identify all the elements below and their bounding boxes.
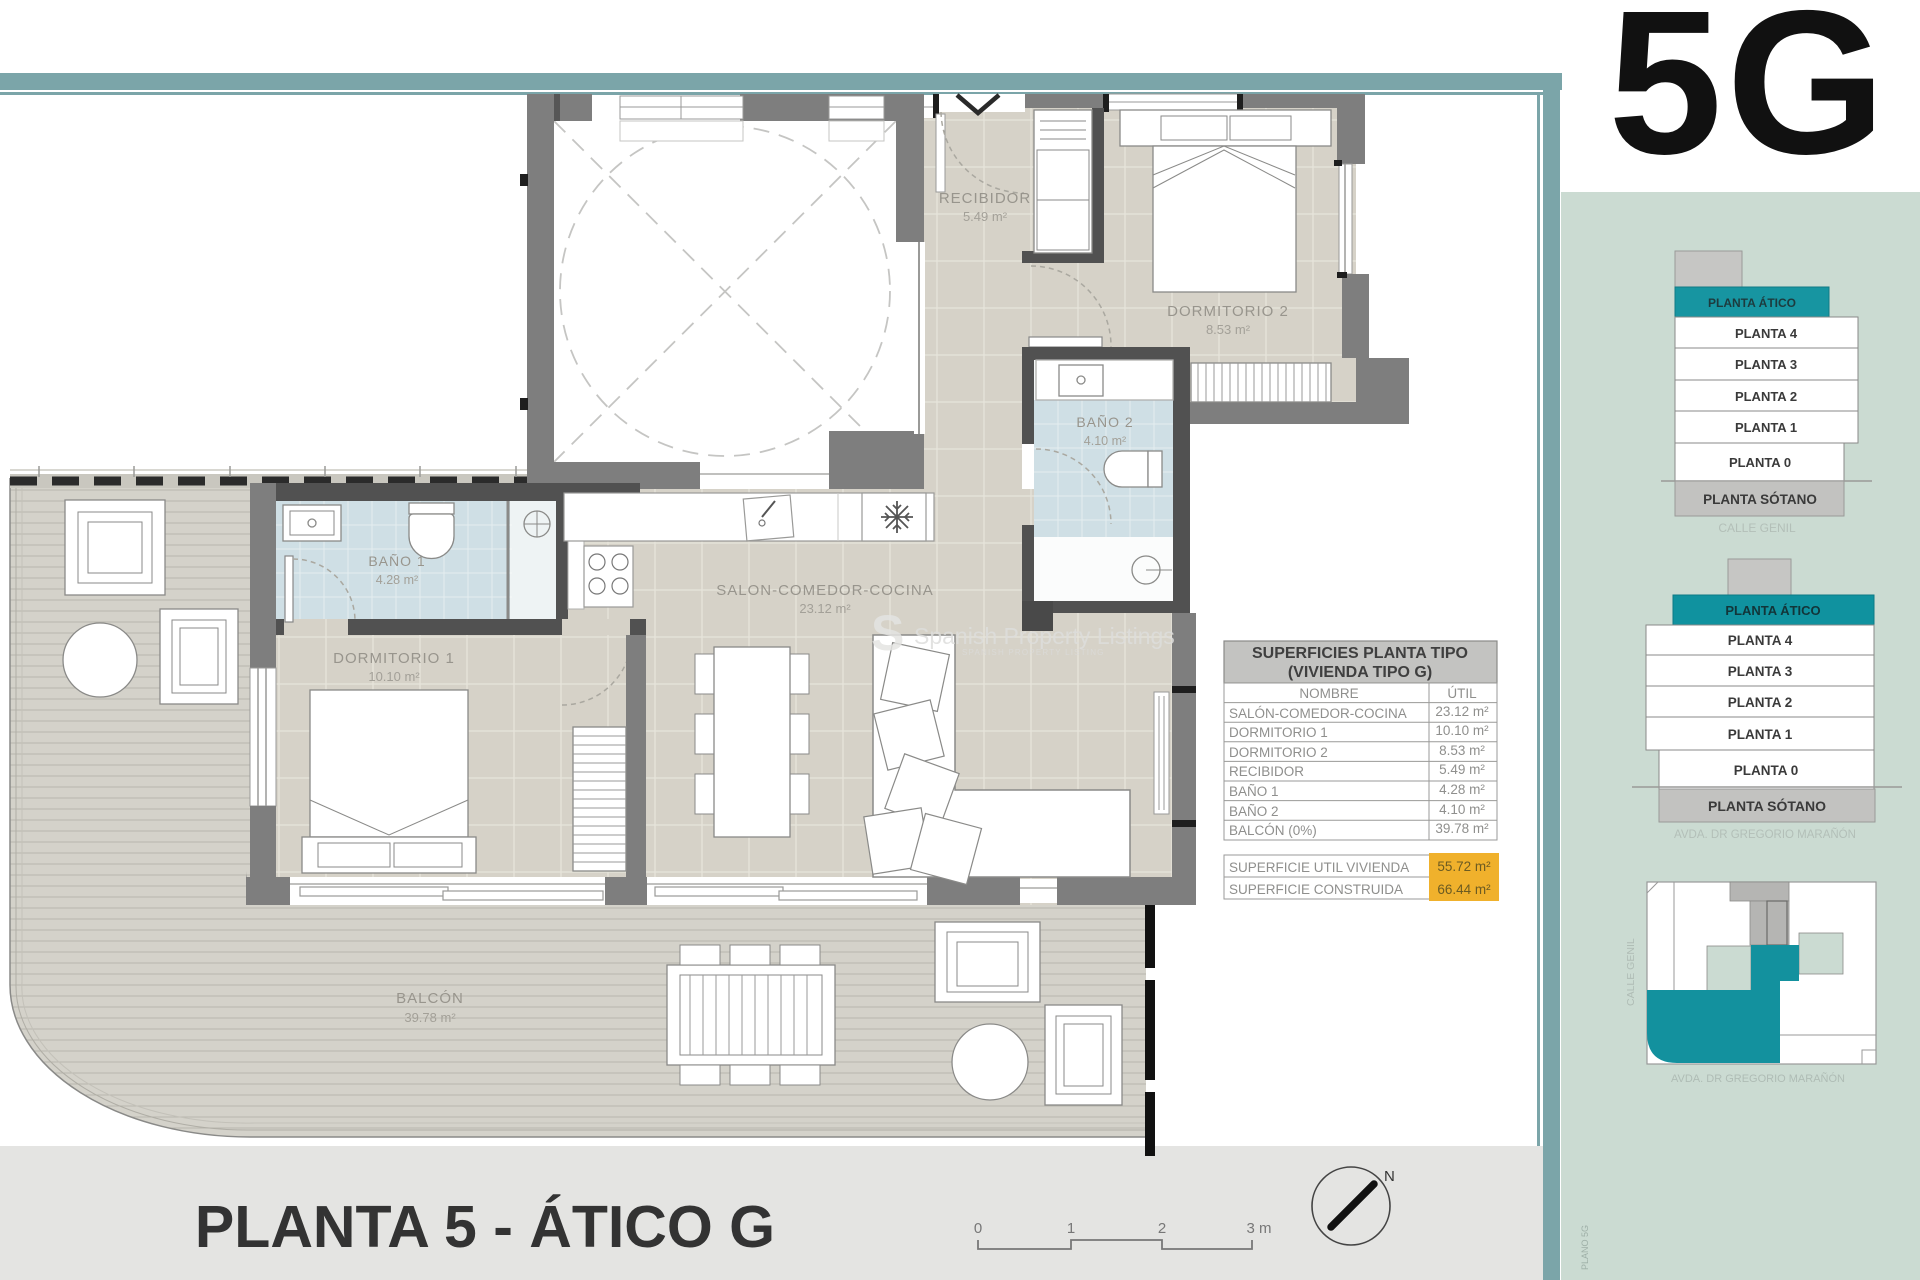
svg-text:(VIVIENDA TIPO G): (VIVIENDA TIPO G) — [1288, 664, 1432, 681]
svg-text:PLANTA 5 - ÁTICO G: PLANTA 5 - ÁTICO G — [195, 1194, 775, 1260]
svg-text:PLANTA 2: PLANTA 2 — [1728, 695, 1793, 710]
svg-text:SALON-COMEDOR-COCINA: SALON-COMEDOR-COCINA — [716, 582, 934, 599]
svg-text:39.78 m²: 39.78 m² — [1435, 821, 1489, 836]
svg-text:N: N — [1384, 1168, 1395, 1185]
svg-text:PLANTA 4: PLANTA 4 — [1728, 633, 1793, 648]
svg-text:PLANTA 0: PLANTA 0 — [1734, 763, 1799, 778]
svg-text:PLANTA 1: PLANTA 1 — [1728, 727, 1793, 742]
svg-text:5.49 m²: 5.49 m² — [1439, 762, 1485, 777]
svg-text:AVDA. DR GREGORIO MARAÑÓN: AVDA. DR GREGORIO MARAÑÓN — [1671, 1072, 1845, 1085]
svg-text:AVDA. DR GREGORIO MARAÑÓN: AVDA. DR GREGORIO MARAÑÓN — [1674, 828, 1856, 841]
svg-text:39.78 m²: 39.78 m² — [404, 1010, 456, 1025]
svg-text:3 m: 3 m — [1246, 1220, 1271, 1237]
svg-text:5G: 5G — [1608, 0, 1889, 197]
svg-text:2: 2 — [1158, 1220, 1166, 1237]
svg-text:NOMBRE: NOMBRE — [1299, 686, 1358, 701]
svg-text:DORMITORIO 1: DORMITORIO 1 — [1229, 725, 1328, 740]
svg-text:CALLE GENIL: CALLE GENIL — [1625, 938, 1637, 1006]
svg-text:SUPERFICIE UTIL VIVIENDA: SUPERFICIE UTIL VIVIENDA — [1229, 860, 1409, 875]
svg-text:BAÑO 2: BAÑO 2 — [1229, 804, 1279, 819]
svg-text:4.10 m²: 4.10 m² — [1439, 802, 1485, 817]
svg-text:PLANTA ÁTICO: PLANTA ÁTICO — [1708, 295, 1796, 310]
svg-text:BAÑO 1: BAÑO 1 — [1229, 784, 1279, 799]
svg-text:ÚTIL: ÚTIL — [1447, 686, 1477, 701]
svg-text:4.28 m²: 4.28 m² — [1439, 782, 1485, 797]
svg-text:PLANTA 4: PLANTA 4 — [1735, 326, 1798, 341]
svg-text:PLANTA 3: PLANTA 3 — [1735, 357, 1797, 372]
svg-text:BALCÓN: BALCÓN — [396, 990, 464, 1007]
svg-text:23.12 m²: 23.12 m² — [1435, 704, 1489, 719]
svg-text:PLANTA SÓTANO: PLANTA SÓTANO — [1708, 797, 1826, 814]
svg-text:PLANTA SÓTANO: PLANTA SÓTANO — [1703, 492, 1817, 507]
svg-text:DORMITORIO 1: DORMITORIO 1 — [333, 650, 455, 667]
svg-text:8.53 m²: 8.53 m² — [1206, 322, 1251, 337]
svg-text:CALLE GENIL: CALLE GENIL — [1718, 521, 1796, 535]
svg-text:BAÑO 2: BAÑO 2 — [1076, 414, 1133, 430]
svg-text:RECIBIDOR: RECIBIDOR — [1229, 764, 1304, 779]
svg-text:23.12 m²: 23.12 m² — [799, 601, 851, 616]
svg-text:0: 0 — [974, 1220, 982, 1237]
svg-text:66.44 m²: 66.44 m² — [1437, 882, 1491, 897]
svg-text:SUPERFICIES PLANTA TIPO: SUPERFICIES PLANTA TIPO — [1252, 645, 1468, 662]
svg-text:BALCÓN (0%): BALCÓN (0%) — [1229, 823, 1317, 838]
svg-text:PLANTA 2: PLANTA 2 — [1735, 389, 1797, 404]
svg-text:RECIBIDOR: RECIBIDOR — [939, 190, 1031, 207]
svg-text:PLANTA 1: PLANTA 1 — [1735, 420, 1797, 435]
svg-text:SPANISH PROPERTY LISTING: SPANISH PROPERTY LISTING — [962, 648, 1105, 657]
svg-text:1: 1 — [1067, 1220, 1075, 1237]
svg-text:DORMITORIO 2: DORMITORIO 2 — [1229, 745, 1328, 760]
svg-text:DORMITORIO 2: DORMITORIO 2 — [1167, 303, 1289, 320]
svg-text:SUPERFICIE CONSTRUIDA: SUPERFICIE CONSTRUIDA — [1229, 882, 1403, 897]
svg-text:SALÓN-COMEDOR-COCINA: SALÓN-COMEDOR-COCINA — [1229, 706, 1407, 721]
svg-text:PLANTA 3: PLANTA 3 — [1728, 664, 1793, 679]
svg-text:PLANO 5G: PLANO 5G — [1580, 1225, 1590, 1270]
svg-text:S: S — [871, 605, 904, 661]
svg-text:55.72 m²: 55.72 m² — [1437, 859, 1491, 874]
svg-text:Spanish Property Listings: Spanish Property Listings — [914, 623, 1175, 649]
svg-text:PLANTA ÁTICO: PLANTA ÁTICO — [1725, 603, 1820, 618]
svg-text:10.10 m²: 10.10 m² — [368, 669, 420, 684]
svg-text:4.28 m²: 4.28 m² — [376, 573, 418, 587]
svg-text:PLANTA 0: PLANTA 0 — [1729, 455, 1791, 470]
svg-text:5.49 m²: 5.49 m² — [963, 209, 1008, 224]
svg-text:4.10 m²: 4.10 m² — [1084, 434, 1126, 448]
svg-text:10.10 m²: 10.10 m² — [1435, 723, 1489, 738]
svg-text:8.53 m²: 8.53 m² — [1439, 743, 1485, 758]
svg-text:BAÑO 1: BAÑO 1 — [368, 553, 425, 569]
